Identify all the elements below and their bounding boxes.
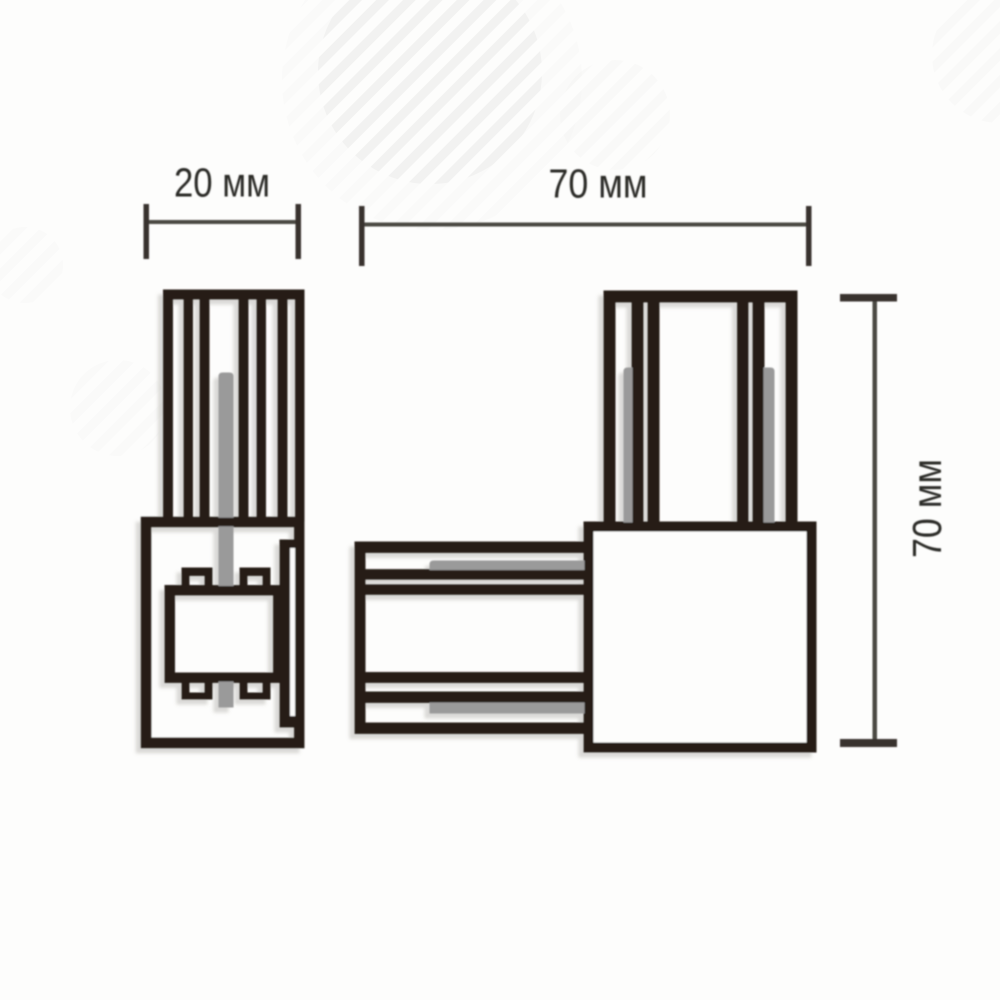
- svg-text:20 мм: 20 мм: [174, 160, 270, 206]
- svg-text:70 мм: 70 мм: [549, 161, 648, 207]
- svg-text:70 мм: 70 мм: [904, 459, 950, 558]
